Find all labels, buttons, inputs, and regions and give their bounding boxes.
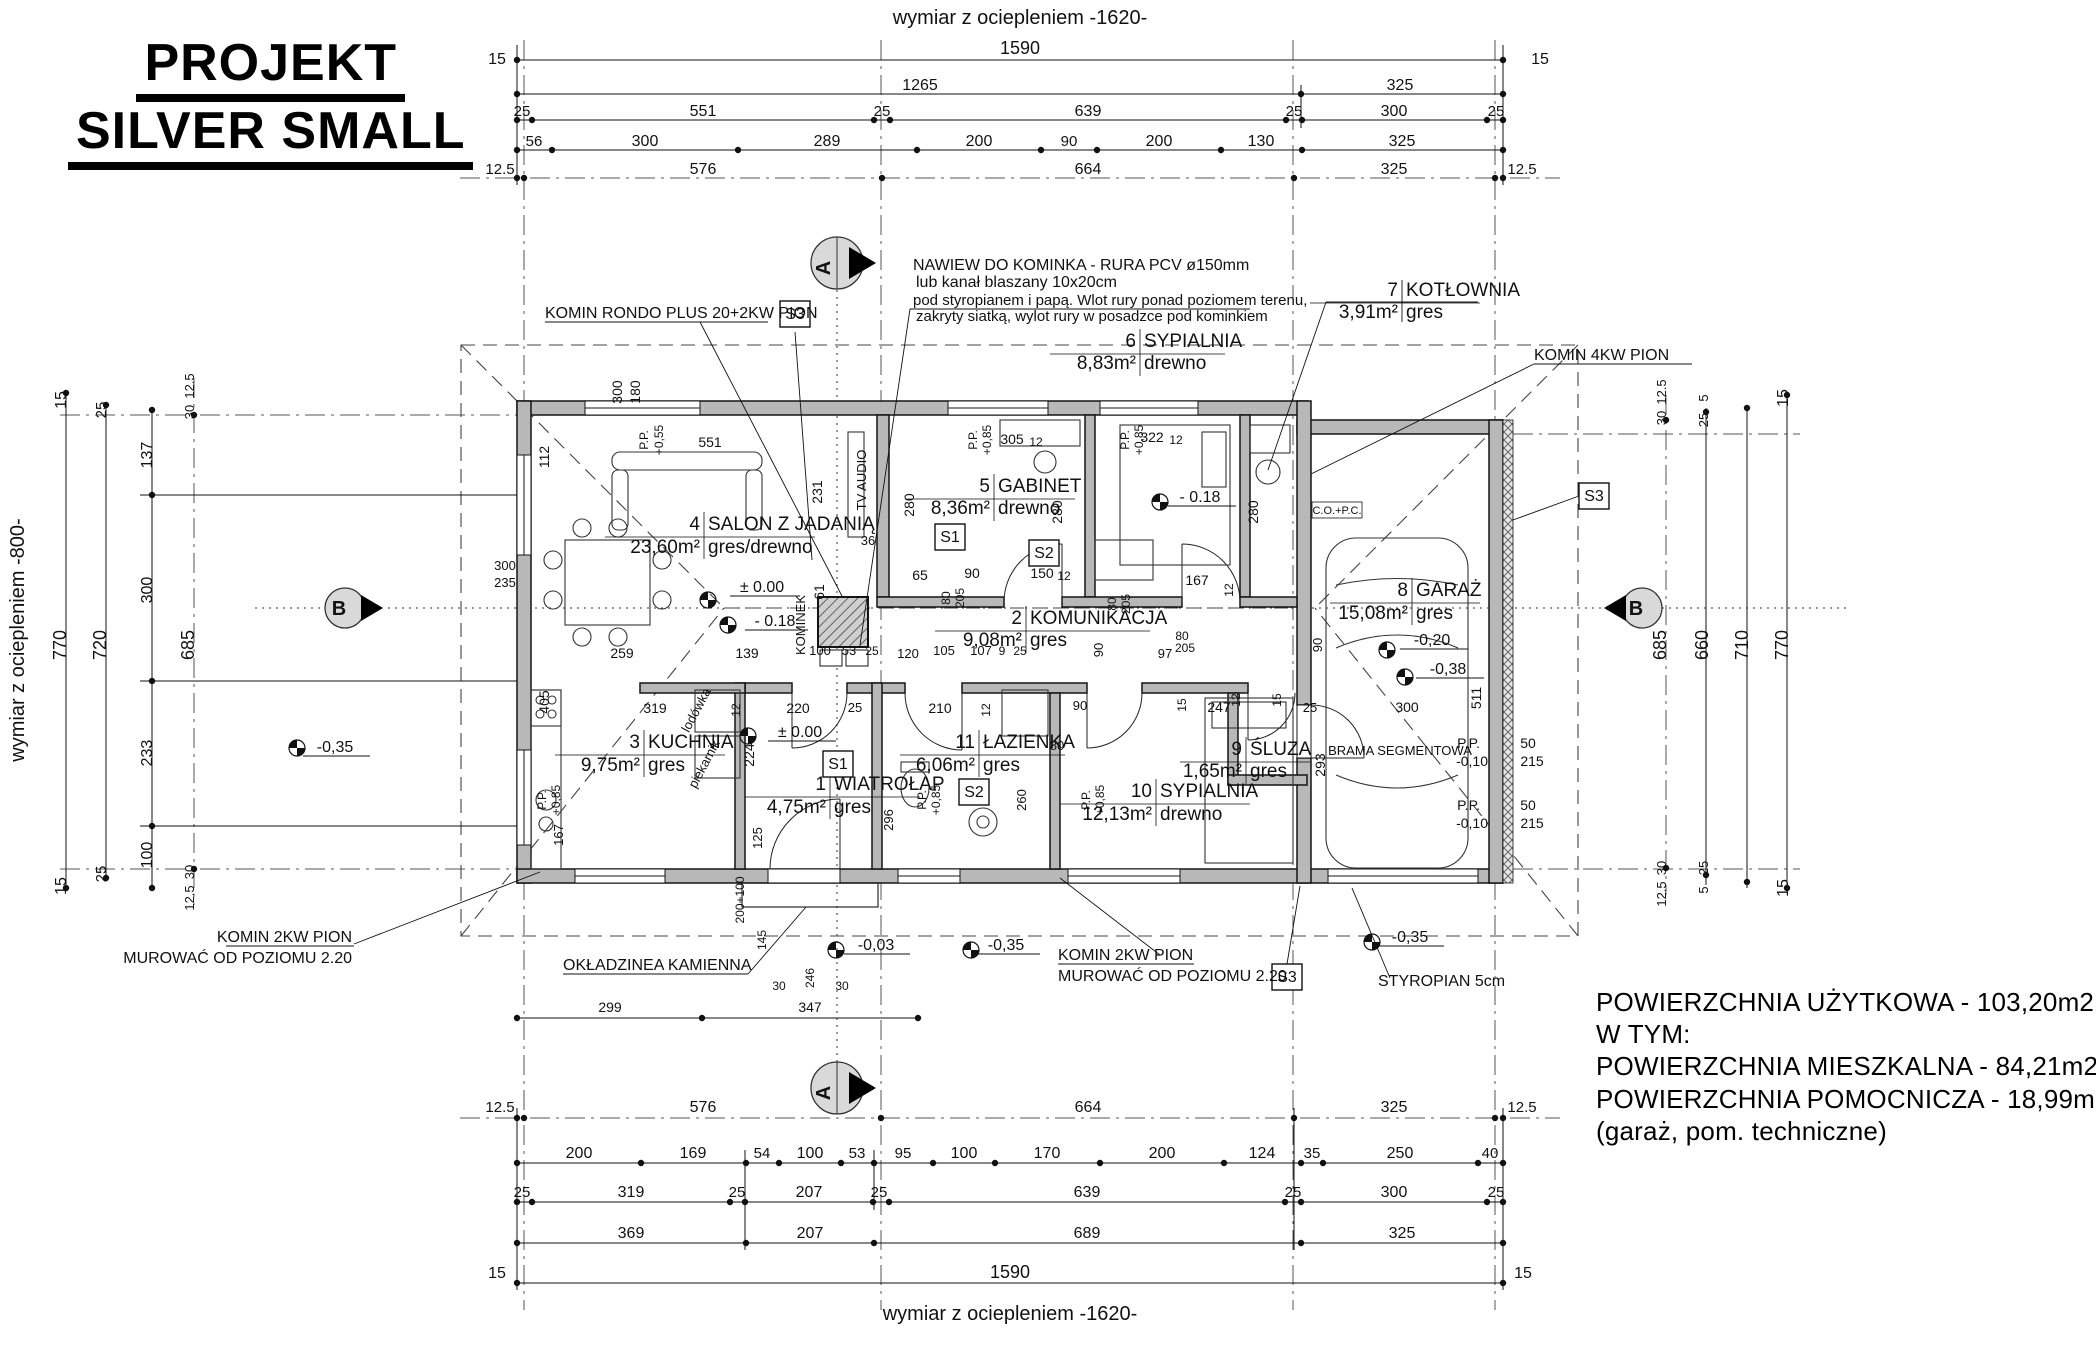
dim-label: 120 [897,646,919,661]
room-label: 2 [1011,608,1022,629]
dim-label: 12.5 [1654,379,1669,404]
dim-label: 180 [627,380,643,404]
dim-label: 289 [814,133,841,150]
dim-label: 207 [797,1225,824,1242]
dim-label: 12.5 [1507,1099,1536,1116]
summary-auxiliary-note: (garaż, pom. techniczne) [1596,1115,2096,1147]
dim-label: 30 [1654,861,1669,875]
summary-living-area: POWIERZCHNIA MIESZKALNA - 84,21m2 [1596,1050,2096,1082]
axes-layer [60,40,1800,1310]
room-label: KOTŁOWNIA [1406,280,1520,301]
annotation: KOMIN 2KW PION [1058,947,1193,964]
dim-label: 280 [901,493,917,517]
room-label: SYPIALNIA [1144,331,1243,352]
dim-label: 12 [1029,435,1043,449]
dim-label: 200 [566,1145,593,1162]
dim-label: 107 [970,643,992,658]
project-title-line1: PROJEKT [136,34,405,102]
room-label: SYPIALNIA [1160,781,1259,802]
dim-label: 97 [1158,646,1172,661]
dim-label: 167 [551,824,566,846]
dim-label: 200 [966,133,993,150]
dim-label: 40 [1482,1145,1499,1162]
dim-label: 61 [811,584,827,600]
dim-label: 12 [979,703,993,717]
annotation: pod styropianem i papą. Wlot rury ponad … [913,292,1307,309]
dim-label: 405 [536,690,552,714]
dim-label: 300 [1395,699,1419,715]
dim-label: 299 [598,999,622,1015]
room-label: gres [648,755,685,776]
dim-label: 300 [139,577,156,604]
dim-label: 300 [1381,103,1408,120]
dim-label: 319 [618,1184,645,1201]
dim-label: P.P. [1079,790,1093,810]
room-label: KUCHNIA [648,732,734,753]
dim-label: 1590 [1000,38,1040,58]
dim-label: 325 [1389,133,1416,150]
dim-label: 720 [90,630,110,660]
dim-label: 25 [729,1184,746,1201]
dim-label: 685 [1650,630,1670,660]
dim-label: 231 [809,480,825,504]
dim-label: 5 [1696,886,1711,893]
room-label: 3,91m² [1339,302,1398,323]
room-label: gres [1416,603,1453,624]
dim-label: 664 [1075,1099,1102,1116]
dim-label: 12 [1222,583,1236,597]
room-label: 8,83m² [1077,353,1136,374]
dim-label: 15 [1775,389,1792,407]
room-label: GABINET [998,476,1082,497]
dim-label: 25 [93,402,110,419]
level: - 0.18 [755,613,796,630]
section-marker-a: A [813,261,835,275]
dim-label: 246 [803,968,817,988]
room-label: gres [1406,302,1443,323]
dim-label: 80 [1050,738,1064,753]
room-label: GARAŻ [1416,580,1482,601]
dim-label: 15 [53,391,70,409]
dim-label: P.P. [535,790,549,810]
dim-label: -0,10 [1456,815,1488,831]
annotation: BRAMA SEGMENTOWA [1328,743,1472,758]
dim-label: 300 [609,380,625,404]
annotation: KOMIN RONDO PLUS 20+2KW PION [545,305,818,322]
section-marker-b: B [1629,598,1643,620]
dim-label: 207 [796,1184,823,1201]
dim-label: 170 [1034,1145,1061,1162]
summary-auxiliary-area: POWIERZCHNIA POMOCNICZA - 18,99m2 [1596,1083,2096,1115]
dim-label: 12.5 [182,373,197,398]
dim-label: 770 [50,630,70,660]
dim-label: 280 [1049,500,1065,524]
dim-label: 215 [1520,753,1544,769]
dim-label: 325 [1389,1225,1416,1242]
room-label: gres/drewno [708,537,813,558]
level: ± 0.00 [778,724,822,741]
dim-label: 25 [1285,1184,1302,1201]
dim-label: 25 [848,700,862,715]
dim-label: 65 [912,567,928,583]
dim-label: 12 [1169,433,1183,447]
dim-label: 639 [1074,1184,1101,1201]
note-top: wymiar z ociepleniem -1620- [892,7,1148,29]
dim-label: P.P. [915,790,929,810]
dim-label: 80 [939,591,953,605]
room-label: gres [834,797,871,818]
level: - 0.18 [1180,489,1221,506]
dim-label: 200+100 [733,876,747,923]
dim-label: 169 [680,1145,707,1162]
dim-label: 25 [1013,644,1027,658]
dim-label: 660 [1692,630,1712,660]
dim-label: 150 [1030,565,1054,581]
dim-label: 205 [1119,594,1133,614]
dim-label: 145 [755,930,769,950]
dim-label: 25 [865,644,879,658]
dim-label: +0,85 [1132,424,1146,455]
level: -0,35 [317,739,354,756]
dim-label: 685 [178,630,198,660]
room-label: 8,36m² [931,498,990,519]
room-label: 10 [1131,781,1152,802]
room-label: ŚLUZA [1250,738,1312,760]
dim-label: 80 [1105,597,1119,611]
dim-label: 25 [1488,1184,1505,1201]
room-label: 1 [815,774,826,795]
room-label: gres [1250,761,1287,782]
dim-label: 100 [797,1145,824,1162]
dim-label: 689 [1074,1225,1101,1242]
note-left: wymiar z ociepleniem -800- [7,518,29,762]
dim-label: 215 [1520,815,1544,831]
dim-label: 100 [139,842,156,869]
dim-label: 224 [741,743,757,767]
note-bottom: wymiar z ociepleniem -1620- [882,1303,1138,1325]
level: -0,03 [858,937,895,954]
drawing-sheet: wymiar z ociepleniem -1620-1515901512653… [0,0,2096,1346]
dim-label: 25 [1303,700,1317,715]
dim-label: 235 [494,575,516,590]
annotation: STYROPIAN 5cm [1378,973,1505,990]
dim-label: 639 [1075,103,1102,120]
dim-label: 105 [933,643,955,658]
area-summary: POWIERZCHNIA UŻYTKOWA - 103,20m2 W TYM: … [1596,986,2096,1147]
symbol-s3: S3 [1584,488,1604,505]
dim-label: 250 [1387,1145,1414,1162]
dim-label: 325 [1381,1099,1408,1116]
insulation-strip [1503,420,1513,883]
dim-label: 1265 [902,77,938,94]
dim-label: 5 [1696,394,1711,401]
room-label: 23,60m² [630,537,700,558]
dim-label: 90 [1310,638,1325,652]
dim-label: 12.5 [1507,161,1536,178]
dim-label: 511 [1468,687,1484,710]
dim-label: P.P. [1118,430,1132,450]
dim-label: 167 [1185,572,1209,588]
dim-label: 56 [526,133,543,150]
dim-label: 770 [1772,630,1792,660]
room-label: 11 [955,732,975,753]
dim-label: 293 [1312,753,1328,777]
dim-label: 54 [754,1145,771,1162]
dim-label: 15 [488,1265,506,1282]
room-label: KOMUNIKACJA [1030,608,1168,629]
dim-label: 259 [610,645,634,661]
dim-label: 319 [643,700,667,716]
dim-label: 25 [1696,861,1711,875]
dim-label: 280 [1245,500,1261,524]
project-title: PROJEKT SILVER SMALL [68,34,473,170]
dim-label: 90 [1061,133,1078,150]
dim-label: +0,85 [549,784,563,815]
dim-label: 95 [895,1145,912,1162]
symbol-s3: S3 [1277,969,1297,986]
dim-label: 53 [842,643,856,658]
dim-label: 25 [871,1184,888,1201]
symbol-s2: S2 [1034,545,1054,562]
entrance-porch [742,883,878,907]
dim-label: 710 [1732,630,1752,660]
level: -0,20 [1414,632,1451,649]
dim-label: 369 [618,1225,645,1242]
room-label: gres [983,755,1020,776]
dim-label: 296 [881,809,896,831]
dim-label: 50 [1520,797,1536,813]
dim-label: 200 [1146,133,1173,150]
room-label: 5 [979,476,990,497]
dim-label: 100 [951,1145,978,1162]
summary-usable-area: POWIERZCHNIA UŻYTKOWA - 103,20m2 [1596,986,2096,1018]
dim-label: 1590 [990,1262,1030,1282]
dim-label: 15 [1531,51,1549,68]
room-label: 15,08m² [1338,603,1408,624]
dim-label: 50 [1520,735,1536,751]
annotation: OKŁADZINEA KAMIENNA [563,957,752,974]
room-label: 6,06m² [916,755,975,776]
room-label: drewno [1160,804,1222,825]
dim-label: 325 [1387,77,1414,94]
annotation: lub kanał blaszany 10x20cm [916,274,1117,291]
dim-label: 12.5 [1654,881,1669,906]
level: -0,35 [1392,929,1429,946]
dim-label: 30 [1654,411,1669,425]
dim-label: +0,85 [980,424,994,455]
dim-label: 12.5 [182,885,197,910]
dim-label: 210 [928,700,952,716]
dim-label: 300 [1381,1184,1408,1201]
annotation: KOMIN 4KW PION [1534,347,1669,364]
dim-label: 551 [690,103,717,120]
level: -0,38 [1430,661,1467,678]
room-label: 3 [629,732,640,753]
dim-label: 12.5 [485,161,514,178]
summary-in-that: W TYM: [1596,1018,2096,1050]
dim-label: 15 [1514,1265,1532,1282]
dim-label: 15 [53,877,70,895]
dim-label: 25 [514,103,531,120]
annotation: zakryty siatką, wylot rury w posadzce po… [916,308,1268,325]
dim-label: 100 [809,643,831,658]
dim-label: 260 [1014,789,1029,811]
room-label: 6 [1125,331,1136,352]
dim-label: 9 [999,644,1006,658]
labels-layer: wymiar z ociepleniem -1620-1515901512653… [7,7,1792,1325]
dim-label: 125 [750,827,765,849]
dim-label: 25 [874,103,891,120]
dim-label: 35 [1304,1145,1321,1162]
symbol-s1: S1 [940,529,960,546]
dim-label: 25 [93,866,110,883]
dim-label: 15 [1175,698,1189,712]
room-label: 7 [1387,280,1398,301]
room-label: 1,65m² [1183,761,1242,782]
dim-label: 305 [1000,431,1024,447]
project-title-line2: SILVER SMALL [68,102,473,170]
dim-label: 12 [729,703,743,717]
dim-label: 576 [690,1099,717,1116]
annotation: MUROWAĆ OD POZIOMU 2.20 [123,948,352,967]
dim-label: +0,55 [652,424,666,455]
dim-label: 664 [1075,161,1102,178]
annotation: TV AUDIO [854,450,869,511]
dim-label: 205 [953,588,967,608]
level: -0,35 [988,937,1025,954]
dim-label: 25 [1286,103,1303,120]
section-marker-b: B [332,598,346,620]
room-label: 8 [1397,580,1408,601]
dim-label: 15 [1775,879,1792,897]
dim-label: 300 [632,133,659,150]
entrance-opening [768,869,840,883]
room-label: SALON Z JADANIĄ [708,514,875,535]
dim-label: 124 [1249,1145,1276,1162]
dim-label: 36 [861,533,875,548]
dim-label: 347 [798,999,822,1015]
annotation: MUROWAĆ OD POZIOMU 2.20 [1058,966,1287,985]
dim-label: 12.5 [485,1099,514,1116]
dim-label: 137 [139,442,156,469]
room-label: gres [1030,630,1067,651]
dim-label: 130 [1248,133,1275,150]
dim-label: 205 [1175,641,1195,655]
dim-label: +0,85 [929,784,943,815]
dim-label: 247 [1207,699,1231,715]
dim-label: P.P. [637,430,651,450]
dim-label: 90 [964,565,980,581]
dim-label: 220 [786,700,810,716]
room-label: 9 [1231,739,1242,760]
dim-label: 25 [1696,413,1711,427]
dim-label: 25 [514,1184,531,1201]
dim-label: 30 [182,865,197,879]
room-label: 4 [689,514,700,535]
dim-label: 200 [1149,1145,1176,1162]
level: ± 0.00 [740,579,784,596]
room-label: 4,75m² [767,797,826,818]
dim-label: 90 [1073,698,1087,713]
dim-label: 551 [698,434,722,450]
dim-label: 300 [494,558,516,573]
dim-label: 30 [182,405,197,419]
symbol-s1: S1 [828,756,848,773]
symbol-s2: S2 [964,784,984,801]
dim-label: 25 [1488,103,1505,120]
dim-label: 30 [835,979,849,993]
dim-label: 15 [488,51,506,68]
dim-label: 15 [1270,693,1284,707]
annotation: C.O.+P.C. [1312,505,1361,517]
dim-label: P.P. [1457,797,1480,813]
symbol-s3: S3 [785,306,805,323]
dim-label: 90 [1091,643,1106,657]
dim-label: 139 [735,645,759,661]
dim-label: 53 [849,1145,866,1162]
dim-label: 12 [1229,693,1243,707]
room-label: 9,75m² [581,755,640,776]
dim-label: P.P. [966,430,980,450]
section-marker-a: A [813,1086,835,1100]
dim-label: 233 [139,740,156,767]
annotation: NAWIEW DO KOMINKA - RURA PCV ø150mm [913,257,1249,274]
dim-label: +0,85 [1093,784,1107,815]
annotation: KOMIN 2KW PION [217,929,352,946]
dim-label: 112 [536,446,552,469]
dim-label: 30 [772,979,786,993]
dim-label: 12 [1057,569,1071,583]
room-label: drewno [1144,353,1206,374]
dim-label: 325 [1381,161,1408,178]
dim-label: 576 [690,161,717,178]
